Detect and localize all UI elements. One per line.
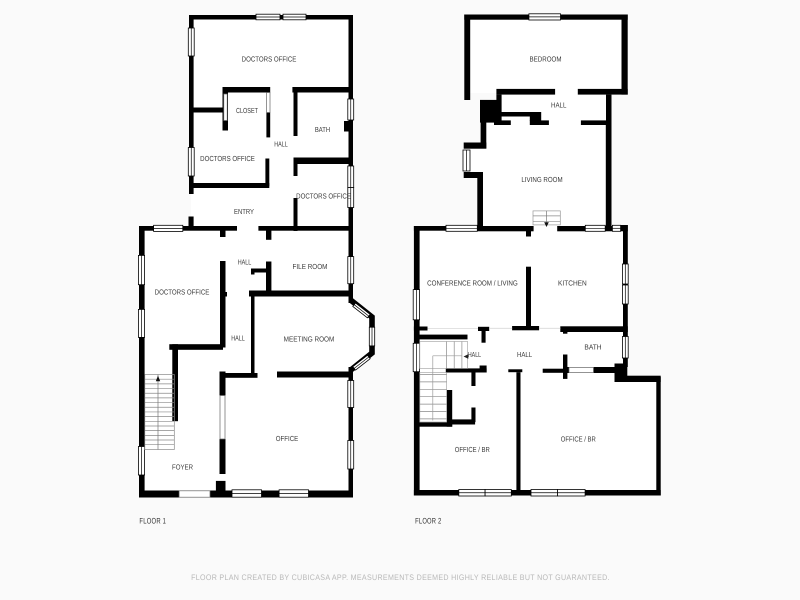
svg-text:FLOOR 1: FLOOR 1: [139, 517, 166, 526]
svg-text:HALL: HALL: [274, 140, 288, 149]
svg-text:OFFICE: OFFICE: [276, 434, 299, 443]
svg-text:DOCTORS OFFICE: DOCTORS OFFICE: [242, 55, 297, 64]
svg-text:KITCHEN: KITCHEN: [558, 279, 587, 288]
svg-text:FLOOR PLAN CREATED BY CUBICASA: FLOOR PLAN CREATED BY CUBICASA APP. MEAS…: [191, 573, 610, 582]
svg-text:FOYER: FOYER: [172, 463, 193, 472]
svg-text:HALL: HALL: [238, 257, 252, 266]
svg-text:HALL: HALL: [231, 334, 245, 343]
svg-text:HALL: HALL: [551, 101, 566, 110]
svg-text:BATH: BATH: [584, 343, 601, 352]
svg-text:FLOOR 2: FLOOR 2: [415, 517, 442, 526]
svg-text:LIVING ROOM: LIVING ROOM: [521, 175, 562, 184]
svg-text:HALL: HALL: [517, 350, 532, 359]
svg-text:OFFICE / BR: OFFICE / BR: [561, 435, 596, 444]
svg-text:CLOSET: CLOSET: [236, 106, 258, 115]
svg-text:MEETING ROOM: MEETING ROOM: [284, 335, 335, 344]
svg-text:FILE ROOM: FILE ROOM: [293, 262, 328, 271]
svg-text:DOCTORS OFFICE: DOCTORS OFFICE: [200, 154, 255, 163]
svg-text:DOCTORS OFFICE: DOCTORS OFFICE: [296, 192, 351, 201]
svg-text:DOCTORS OFFICE: DOCTORS OFFICE: [155, 288, 210, 297]
svg-text:OFFICE / BR: OFFICE / BR: [455, 445, 490, 454]
svg-text:HALL: HALL: [468, 350, 481, 359]
svg-text:BATH: BATH: [315, 125, 330, 134]
svg-text:ENTRY: ENTRY: [234, 207, 254, 216]
svg-text:CONFERENCE ROOM / LIVING: CONFERENCE ROOM / LIVING: [427, 279, 518, 288]
svg-text:BEDROOM: BEDROOM: [530, 55, 562, 64]
